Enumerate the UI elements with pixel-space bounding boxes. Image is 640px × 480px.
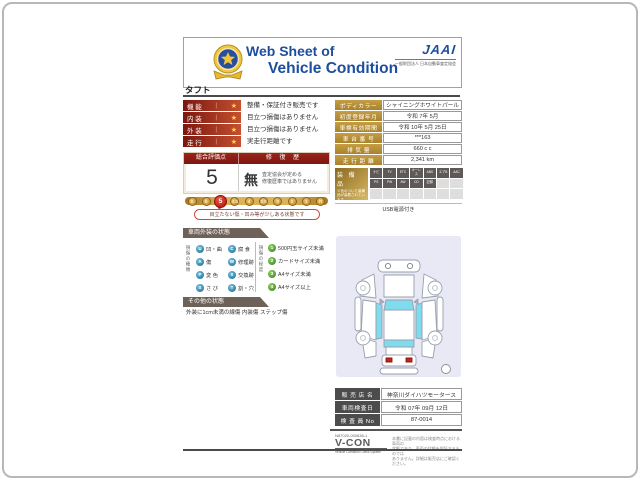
equipment-badge-empty xyxy=(424,189,436,199)
condition-label-text: 機 能 xyxy=(187,101,202,111)
condition-text: 実走行距離です xyxy=(247,136,293,147)
damage-code-icon: C xyxy=(228,245,236,253)
info-value: ***163 xyxy=(383,133,462,143)
equipment-badge: PW xyxy=(383,179,395,189)
dealer-label: 検 査 員 No xyxy=(335,414,380,426)
bottom-divider xyxy=(183,449,462,451)
degree-code-icon: 2 xyxy=(268,257,276,265)
damage-degree-label: A4サイズ未満 xyxy=(278,270,311,278)
equipment-section: 装 備 品 ※色のついた装備品が装着されています ナビ TV ETC キーレス … xyxy=(335,168,462,214)
dealer-value: 令和 07年 09月 12日 xyxy=(381,401,462,413)
damage-degree-label: A4サイズ以上 xyxy=(278,283,311,291)
damage-type-axis-label: 損傷の種類 xyxy=(185,245,191,273)
divider-glyph: | xyxy=(215,114,217,121)
equipment-badge: AW xyxy=(397,179,409,189)
info-value: 令和 7年 5月 xyxy=(383,111,462,121)
equipment-badge: TV xyxy=(383,168,395,178)
condition-row: 走 行 | ★ 実走行距離です xyxy=(183,136,330,147)
condition-text: 整備・保証付き販売です xyxy=(247,100,319,111)
equipment-badge-empty xyxy=(383,189,395,199)
damage-code-icon: A xyxy=(196,258,204,266)
damage-type-label: 修理跡 xyxy=(238,258,254,266)
info-row-chassis-number: 車 台 番 号 ***163 xyxy=(335,133,462,143)
condition-row: 内 装 | ★ 目立つ損傷はありません xyxy=(183,112,330,123)
damage-type-item: C 腐 食 xyxy=(228,244,250,253)
equipment-badge: PS xyxy=(370,179,382,189)
equipment-badge-empty xyxy=(437,189,449,199)
damage-type-label: 傷 xyxy=(206,258,211,266)
scale-step: 4 xyxy=(245,197,254,206)
scale-step: 3.5 xyxy=(259,197,268,206)
damage-type-item: X 交換跡 xyxy=(228,270,254,279)
dealer-value: 87-0014 xyxy=(381,414,462,426)
damage-legend: 損傷の種類 U 凹・曲 C 腐 食 A 傷 W 修理跡 P 変 色 X 交換跡 … xyxy=(183,240,330,295)
disclaimer-line1: 本書に記載の内容は検査時点における車両の xyxy=(392,436,462,446)
condition-label-text: 外 装 xyxy=(187,125,202,135)
jaai-emblem-icon xyxy=(210,43,246,83)
condition-row: 機 能 | ★ 整備・保証付き販売です xyxy=(183,100,330,111)
equipment-badge-empty xyxy=(450,189,462,199)
car-diagram-panel xyxy=(336,236,461,377)
title-line2: Vehicle Condition xyxy=(268,60,398,77)
scale-step: 2 xyxy=(288,197,297,206)
condition-text: 目立つ損傷はありません xyxy=(247,112,318,123)
equipment-badge: エアB xyxy=(437,168,449,178)
dealer-label: 販 売 店 名 xyxy=(335,388,380,400)
info-label: 初度登録年月 xyxy=(335,111,382,121)
equipment-badge: CD xyxy=(410,179,422,189)
dealer-row-inspection-date: 車両検査日 令和 07年 09月 12日 xyxy=(335,401,462,413)
damage-code-icon: T xyxy=(228,284,236,292)
info-row-first-registration: 初度登録年月 令和 7年 5月 xyxy=(335,111,462,121)
evaluation-box: 総合評価点 修 復 歴 5 無 査定協会が定める 修復歴車ではありません xyxy=(183,152,330,194)
damage-type-label: 交換跡 xyxy=(238,271,254,279)
dealer-value: 神奈川ダイハツモータース xyxy=(381,388,462,400)
jaai-logo-block: JAAI 一般財団法人 日本自動車査定協会 xyxy=(395,42,456,67)
dealer-row-shop-name: 販 売 店 名 神奈川ダイハツモータース xyxy=(335,388,462,400)
info-value: 660 c c xyxy=(383,144,462,154)
equipment-title: 装 備 品 xyxy=(337,170,366,188)
info-value: シャイニングホワイトパール xyxy=(383,100,462,110)
damage-code-icon: W xyxy=(228,258,236,266)
condition-label-function: 機 能 | ★ xyxy=(183,100,241,111)
damage-degree-label: カードサイズ未満 xyxy=(278,257,320,265)
equipment-badge: ETC xyxy=(397,168,409,178)
disclaimer-line2: 状態であり、車両の状態を保証するものでは xyxy=(392,446,462,456)
equipment-badge-empty xyxy=(450,179,462,189)
info-label: 走 行 距 離 xyxy=(335,155,382,165)
title-line1: Web Sheet of xyxy=(246,43,398,60)
degree-code-icon: 1 xyxy=(268,244,276,252)
star-icon: ★ xyxy=(231,114,237,122)
equipment-badge: 記録 xyxy=(424,179,436,189)
condition-text: 目立つ損傷はありません xyxy=(247,124,318,135)
info-row-mileage: 走 行 距 離 2,341 km xyxy=(335,155,462,165)
scale-step: S xyxy=(188,197,197,206)
damage-degree-item: 1 500円玉サイズ未満 xyxy=(268,243,324,252)
equipment-badge: ABS xyxy=(424,168,436,178)
damage-type-item: A 傷 xyxy=(196,257,211,266)
damage-degree-label: 500円玉サイズ未満 xyxy=(278,244,324,252)
repair-history-note: 査定協会が定める 修復歴車ではありません xyxy=(262,172,317,185)
equipment-badge: AAC xyxy=(450,168,462,178)
scale-step: 3 xyxy=(273,197,282,206)
evaluation-body: 5 無 査定協会が定める 修復歴車ではありません xyxy=(186,164,327,191)
condition-row: 外 装 | ★ 目立つ損傷はありません xyxy=(183,124,330,135)
other-condition-text: 外装に1cm未満の線傷 内装傷 ステップ傷 xyxy=(186,308,287,316)
dealer-table-underline xyxy=(330,429,462,431)
evaluation-header: 総合評価点 修 復 歴 xyxy=(184,153,329,164)
scale-step: R xyxy=(316,197,325,206)
overall-score-value: 5 xyxy=(186,164,239,191)
repair-history-mark: 無 xyxy=(244,170,258,190)
repair-history-heading: 修 復 歴 xyxy=(239,153,329,164)
other-section-banner: その他の状態 xyxy=(183,297,269,307)
info-label: 車検有効期間 xyxy=(335,122,382,132)
top-divider xyxy=(183,95,460,97)
scale-step: 6 xyxy=(202,197,211,206)
damage-type-label: 割・穴 xyxy=(238,284,254,292)
damage-type-label: 凹・曲 xyxy=(206,245,222,253)
equipment-badge-empty xyxy=(370,189,382,199)
damage-type-item: T 割・穴 xyxy=(228,283,254,292)
damage-type-item: W 修理跡 xyxy=(228,257,254,266)
damage-degree-item: 3 A4サイズ未満 xyxy=(268,269,311,278)
overall-score-heading: 総合評価点 xyxy=(184,153,239,164)
degree-code-icon: 4 xyxy=(268,283,276,291)
dealer-row-inspector-no: 検 査 員 No 87-0014 xyxy=(335,414,462,426)
damage-degree-axis-label: 損傷の程度 xyxy=(258,245,264,273)
equipment-badge: キーレス xyxy=(410,168,422,178)
damage-code-icon: X xyxy=(228,271,236,279)
info-row-body-color: ボディカラー シャイニングホワイトパール xyxy=(335,100,462,110)
equipment-badges: ナビ TV ETC キーレス ABS エアB AAC PS PW AW CD 記… xyxy=(370,168,463,199)
damage-code-icon: P xyxy=(196,271,204,279)
damage-type-item: S さ び xyxy=(196,283,218,292)
info-row-displacement: 排 気 量 660 c c xyxy=(335,144,462,154)
scale-step-selected: 5 xyxy=(214,195,227,208)
damage-degree-item: 2 カードサイズ未満 xyxy=(268,256,320,265)
jaai-subtitle: 一般財団法人 日本自動車査定協会 xyxy=(395,59,456,67)
legend-divider xyxy=(255,242,256,292)
divider-glyph: | xyxy=(215,102,217,109)
damage-type-item: P 変 色 xyxy=(196,270,218,279)
damage-type-label: 腐 食 xyxy=(238,245,250,253)
divider-glyph: | xyxy=(215,126,217,133)
web-sheet-page: Web Sheet of Vehicle Condition JAAI 一般財団… xyxy=(0,0,640,480)
damage-code-icon: U xyxy=(196,245,204,253)
jaai-logo: JAAI xyxy=(394,42,457,57)
header-box: Web Sheet of Vehicle Condition JAAI 一般財団… xyxy=(183,37,462,88)
damage-type-label: 変 色 xyxy=(206,271,218,279)
info-row-inspection-valid: 車検有効期間 令和 10年 5月 25日 xyxy=(335,122,462,132)
info-label: 車 台 番 号 xyxy=(335,133,382,143)
damage-code-icon: S xyxy=(196,284,204,292)
damage-type-item: U 凹・曲 xyxy=(196,244,222,253)
divider-glyph: | xyxy=(215,138,217,145)
star-icon: ★ xyxy=(231,102,237,110)
info-value: 2,341 km xyxy=(383,155,462,165)
info-value: 令和 10年 5月 25日 xyxy=(383,122,462,132)
equipment-badge: ナビ xyxy=(370,168,382,178)
scale-note: 目立たない傷・凹み等が少しある状態です xyxy=(194,209,320,220)
damage-degree-item: 4 A4サイズ以上 xyxy=(268,282,311,291)
page-title: Web Sheet of Vehicle Condition xyxy=(246,43,398,77)
equipment-divider xyxy=(335,203,462,204)
damage-type-label: さ び xyxy=(206,284,218,292)
equipment-note: ※色のついた装備品が装着されています xyxy=(337,189,366,202)
scale-step: 4.5 xyxy=(230,197,239,206)
equipment-badge-empty xyxy=(437,179,449,189)
scale-step: 1 xyxy=(302,197,311,206)
equipment-badge-empty xyxy=(410,189,422,199)
condition-label-exterior: 外 装 | ★ xyxy=(183,124,241,135)
condition-label-mileage: 走 行 | ★ xyxy=(183,136,241,147)
repair-note-line2: 修復歴車ではありません xyxy=(262,179,317,186)
equipment-heading: 装 備 品 ※色のついた装備品が装着されています xyxy=(335,168,368,200)
condition-label-text: 走 行 xyxy=(187,137,202,147)
score-scale: S 6 5 4.5 4 3.5 3 2 1 R xyxy=(185,196,328,206)
condition-label-text: 内 装 xyxy=(187,113,202,123)
equipment-badge-empty xyxy=(397,189,409,199)
degree-code-icon: 3 xyxy=(268,270,276,278)
disclaimer-line3: ありません。詳細は販売店にご確認ください。 xyxy=(392,456,462,466)
star-icon: ★ xyxy=(231,126,237,134)
car-condition-diagram xyxy=(336,236,461,377)
condition-label-interior: 内 装 | ★ xyxy=(183,112,241,123)
info-label: 排 気 量 xyxy=(335,144,382,154)
star-icon: ★ xyxy=(231,138,237,146)
equipment-footer-text: USB電源付き xyxy=(335,205,462,213)
exterior-section-banner: 車両外装の状態 xyxy=(183,228,269,238)
disclaimer-text: 本書に記載の内容は検査時点における車両の 状態であり、車両の状態を保証するもので… xyxy=(392,436,462,466)
dealer-label: 車両検査日 xyxy=(335,401,380,413)
info-label: ボディカラー xyxy=(335,100,382,110)
vcon-logo: V-CON xyxy=(335,438,391,448)
